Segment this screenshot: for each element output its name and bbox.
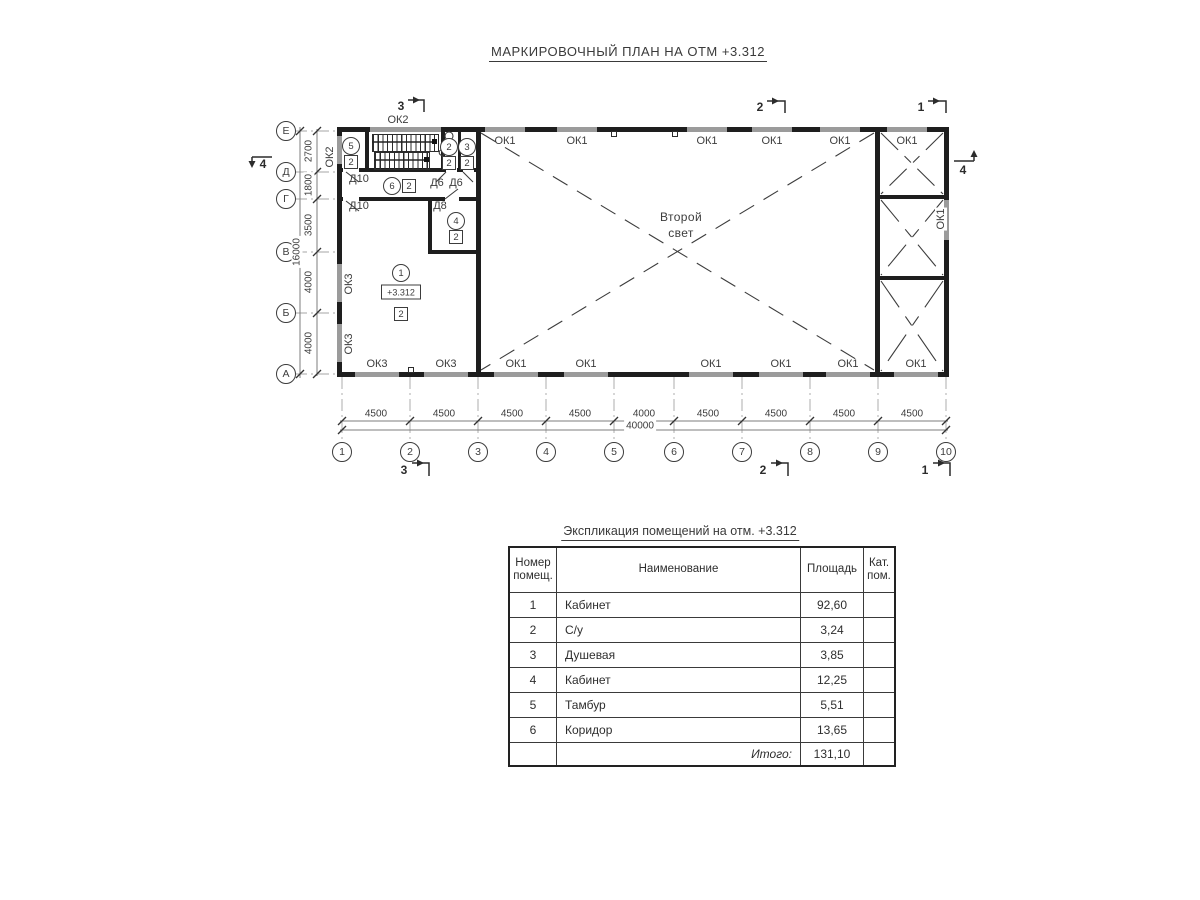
- axis-bubble-B: Б: [276, 303, 296, 323]
- axis-bubble-2: 2: [400, 442, 420, 462]
- row-name: Душевая: [557, 643, 801, 667]
- window-label-ok1: ОК1: [770, 358, 791, 370]
- header-category-line1: Кат.: [869, 557, 889, 570]
- axis-bubble-D: Д: [276, 162, 296, 182]
- axis-bubble-3: 3: [468, 442, 488, 462]
- second-light-label-line1: Второй: [660, 210, 702, 224]
- section-mark-3-bottom: 3: [401, 463, 408, 477]
- row-name: Кабинет: [557, 668, 801, 692]
- window-label-ok1: ОК1: [575, 358, 596, 370]
- section-mark-1-top: 1: [918, 100, 925, 114]
- total-label: Итого:: [557, 743, 801, 765]
- window-label-ok3-vertical: ОК3: [343, 272, 355, 295]
- row-name: С/у: [557, 618, 801, 642]
- dim-left-3500: 3500: [304, 212, 315, 238]
- table-header-row: Номер помещ. Наименование Площадь Кат. п…: [510, 548, 894, 592]
- row-cat: [864, 693, 894, 717]
- dim-bottom-4: 4500: [567, 409, 593, 420]
- header-area-text: Площадь: [807, 563, 857, 576]
- dim-bottom-5: 4000: [631, 409, 657, 420]
- total-area: 131,10: [801, 743, 864, 765]
- dim-bottom-1: 4500: [363, 409, 389, 420]
- axis-bubble-E: Е: [276, 121, 296, 141]
- row-num: 4: [510, 668, 557, 692]
- row-name: Кабинет: [557, 593, 801, 617]
- table-row: 5 Тамбур 5,51: [510, 692, 894, 717]
- window-label-ok1: ОК1: [837, 358, 858, 370]
- row-area: 12,25: [801, 668, 864, 692]
- window-label-ok3: ОК3: [366, 358, 387, 370]
- row-name: Коридор: [557, 718, 801, 742]
- table-row: 6 Коридор 13,65: [510, 717, 894, 742]
- room-category-2: 2: [442, 156, 456, 170]
- room-category-1: 2: [394, 307, 408, 321]
- room-category-4: 2: [449, 230, 463, 244]
- table-row: 3 Душевая 3,85: [510, 642, 894, 667]
- window-label-ok1: ОК1: [905, 358, 926, 370]
- row-num: 3: [510, 643, 557, 667]
- dim-left-1800: 1800: [304, 172, 315, 198]
- axis-bubble-A: А: [276, 364, 296, 384]
- section-mark-1-bottom: 1: [922, 463, 929, 477]
- dim-left-total: 16000: [292, 236, 303, 268]
- row-cat: [864, 643, 894, 667]
- elevation-mark: +3.312: [381, 285, 421, 300]
- door-label-d10: Д10: [349, 173, 369, 185]
- axis-bubble-4: 4: [536, 442, 556, 462]
- dim-bottom-7: 4500: [763, 409, 789, 420]
- axis-bubble-8: 8: [800, 442, 820, 462]
- axis-bubble-10: 10: [936, 442, 956, 462]
- row-area: 5,51: [801, 693, 864, 717]
- row-name: Тамбур: [557, 693, 801, 717]
- header-room-number-line2: помещ.: [513, 570, 553, 583]
- row-area: 13,65: [801, 718, 864, 742]
- window-label-ok3-vertical: ОК3: [343, 332, 355, 355]
- window-label-ok1: ОК1: [566, 135, 587, 147]
- table-row: 1 Кабинет 92,60: [510, 592, 894, 617]
- section-mark-2-bottom: 2: [760, 463, 767, 477]
- door-label-d6: Д6: [430, 177, 444, 189]
- window-label-ok1: ОК1: [696, 135, 717, 147]
- axis-bubble-5: 5: [604, 442, 624, 462]
- window-label-ok1: ОК1: [505, 358, 526, 370]
- room-category-3: 2: [460, 156, 474, 170]
- section-mark-2-top: 2: [757, 100, 764, 114]
- window-label-ok1: ОК1: [761, 135, 782, 147]
- dim-left-4000b: 4000: [304, 330, 315, 356]
- row-num: 1: [510, 593, 557, 617]
- row-area: 3,85: [801, 643, 864, 667]
- total-empty: [510, 743, 557, 765]
- table-row: 2 С/у 3,24: [510, 617, 894, 642]
- table-row: 4 Кабинет 12,25: [510, 667, 894, 692]
- row-num: 2: [510, 618, 557, 642]
- table-title: Экспликация помещений на отм. +3.312: [561, 524, 799, 541]
- row-cat: [864, 593, 894, 617]
- explication-table: Номер помещ. Наименование Площадь Кат. п…: [508, 546, 896, 767]
- header-area: Площадь: [801, 548, 864, 592]
- window-label-ok3: ОК3: [435, 358, 456, 370]
- dim-bottom-8: 4500: [831, 409, 857, 420]
- dim-left-2700: 2700: [304, 138, 315, 164]
- row-cat: [864, 668, 894, 692]
- second-light-label-line2: свет: [668, 226, 694, 240]
- row-num: 5: [510, 693, 557, 717]
- window-label-ok2-vertical: ОК2: [324, 145, 336, 168]
- total-cat-empty: [864, 743, 894, 765]
- dim-bottom-total: 40000: [624, 421, 656, 432]
- dim-left-4000a: 4000: [304, 269, 315, 295]
- room-number-2: 2: [440, 138, 458, 156]
- section-mark-3-top: 3: [398, 99, 405, 113]
- door-label-d6: Д6: [449, 177, 463, 189]
- window-label-ok2: ОК2: [387, 114, 408, 126]
- door-label-d10: Д10: [349, 200, 369, 212]
- dim-bottom-2: 4500: [431, 409, 457, 420]
- door-label-d8: Д8: [433, 200, 447, 212]
- header-name-text: Наименование: [639, 563, 719, 576]
- axis-bubble-9: 9: [868, 442, 888, 462]
- room-number-4: 4: [447, 212, 465, 230]
- row-num: 6: [510, 718, 557, 742]
- window-label-ok1: ОК1: [829, 135, 850, 147]
- room-number-3: 3: [458, 138, 476, 156]
- window-label-ok1: ОК1: [494, 135, 515, 147]
- table-total-row: Итого: 131,10: [510, 742, 894, 765]
- header-room-number-line1: Номер: [515, 557, 550, 570]
- dim-bottom-3: 4500: [499, 409, 525, 420]
- axis-bubble-6: 6: [664, 442, 684, 462]
- axis-bubble-G: Г: [276, 189, 296, 209]
- window-label-ok1: ОК1: [700, 358, 721, 370]
- row-area: 92,60: [801, 593, 864, 617]
- section-mark-4-left: 4: [260, 157, 267, 171]
- header-category-line2: пом.: [867, 570, 891, 583]
- room-category-6: 2: [402, 179, 416, 193]
- drawing-sheet: МАРКИРОВОЧНЫЙ ПЛАН НА ОТМ +3.312: [0, 0, 1200, 900]
- room-number-5: 5: [342, 137, 360, 155]
- dim-bottom-6: 4500: [695, 409, 721, 420]
- row-cat: [864, 718, 894, 742]
- header-category: Кат. пом.: [864, 548, 894, 592]
- section-mark-4-right: 4: [960, 163, 967, 177]
- window-label-ok1: ОК1: [896, 135, 917, 147]
- window-label-ok1-vertical: ОК1: [935, 207, 947, 230]
- room-category-5: 2: [344, 155, 358, 169]
- room-number-6: 6: [383, 177, 401, 195]
- room-number-1: 1: [392, 264, 410, 282]
- header-name: Наименование: [557, 548, 801, 592]
- axis-bubble-1: 1: [332, 442, 352, 462]
- row-area: 3,24: [801, 618, 864, 642]
- row-cat: [864, 618, 894, 642]
- header-room-number: Номер помещ.: [510, 548, 557, 592]
- axis-bubble-7: 7: [732, 442, 752, 462]
- dim-bottom-9: 4500: [899, 409, 925, 420]
